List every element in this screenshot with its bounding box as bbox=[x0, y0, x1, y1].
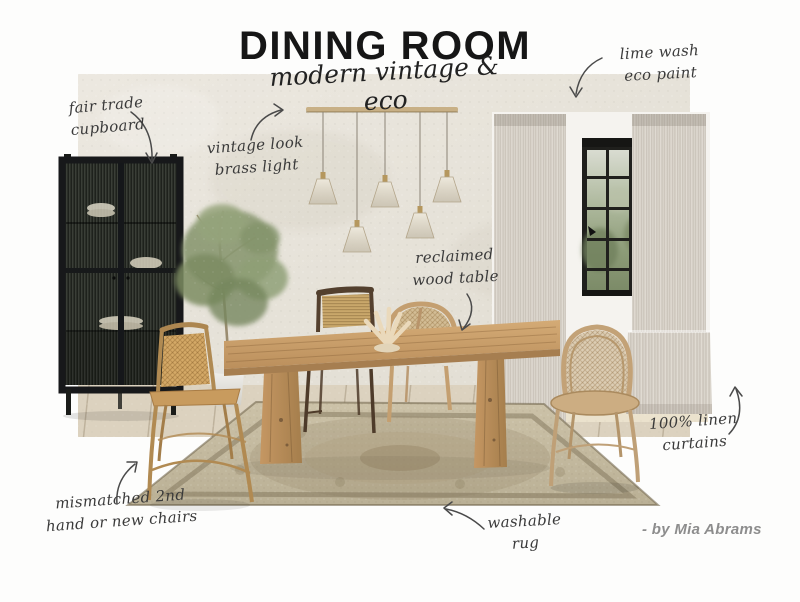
author-credit: - by Mia Abrams bbox=[642, 521, 792, 538]
annotation-table: reclaimed wood table bbox=[397, 243, 513, 292]
right-curtain bbox=[626, 114, 712, 414]
annotation-light: vintage look brass light bbox=[193, 131, 320, 183]
annotation-curtains: 100% linen curtains bbox=[635, 407, 754, 458]
moodboard-page: DINING ROOM modern vintage & eco fair tr… bbox=[0, 0, 800, 602]
annotation-rug: washable rug bbox=[467, 508, 583, 557]
annotation-paint: lime wash eco paint bbox=[597, 39, 723, 89]
